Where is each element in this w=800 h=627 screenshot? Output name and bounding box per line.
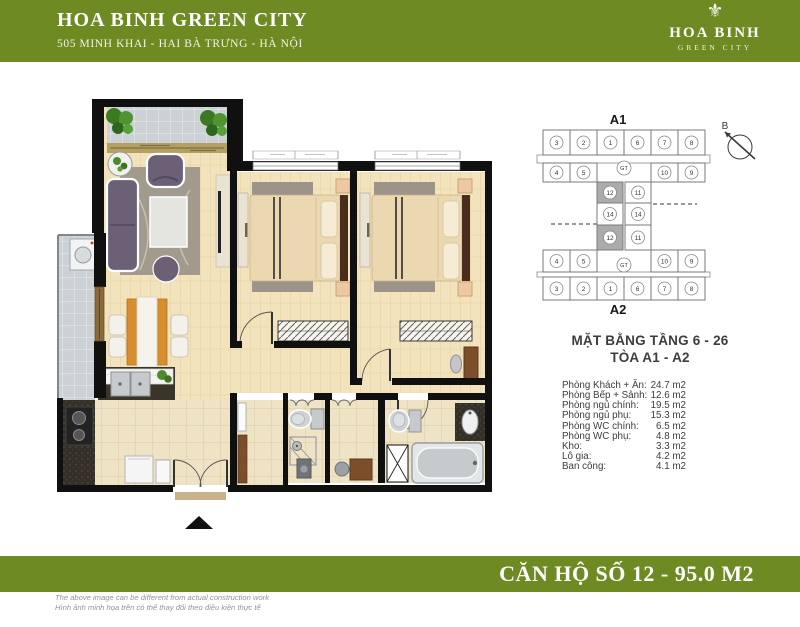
dressing-stool <box>451 355 462 373</box>
tower-label: TÒA A1 - A2 <box>535 349 765 366</box>
unit-number: 5 <box>582 170 586 177</box>
disclaimer: The above image can be different from ac… <box>55 593 375 613</box>
unit-number: 2 <box>582 286 586 293</box>
nightstand <box>336 179 350 193</box>
core-label: GT <box>620 166 628 172</box>
apartment-floor-plan <box>50 85 520 535</box>
unit-number: 5 <box>582 258 586 265</box>
unit-number: 6 <box>636 286 640 293</box>
headboard <box>462 195 470 281</box>
dining-chair <box>171 337 188 357</box>
coffee-table <box>150 197 187 247</box>
unit-number: 10 <box>661 258 669 265</box>
plan-info: MẶT BẰNG TẦNG 6 - 26 TÒA A1 - A2 <box>535 332 765 366</box>
headboard <box>340 195 348 281</box>
unit-number: 2 <box>582 140 586 147</box>
unit-number: 9 <box>690 258 694 265</box>
unit-number: 1 <box>609 140 613 147</box>
dimension-strip <box>375 151 460 159</box>
tower-a2-label: A2 <box>610 302 627 317</box>
logo-tagline: GREEN CITY <box>640 42 790 53</box>
apartment-banner: CĂN HỘ SỐ 12 - 95.0 M2 <box>0 556 800 592</box>
dining-chair <box>109 315 126 335</box>
unit-number: 8 <box>690 286 694 293</box>
header-bar: HOA BINH GREEN CITY 505 MINH KHAI - HAI … <box>0 0 800 62</box>
logia <box>70 239 96 270</box>
room-row: Ban công:4.1 m2 <box>562 462 686 472</box>
unit-number: 6 <box>636 140 640 147</box>
threshold <box>175 492 226 500</box>
toilet-tank <box>409 410 421 432</box>
brand-logo: ⚜ HOA BINH GREEN CITY <box>640 0 790 62</box>
unit-number: 7 <box>663 140 667 147</box>
unit-number: 11 <box>635 190 642 197</box>
entry-mirror <box>238 403 246 431</box>
armchair <box>147 154 184 187</box>
unit-number: 7 <box>663 286 667 293</box>
lotus-emblem-icon: ⚜ <box>640 0 790 24</box>
disclaimer-en: The above image can be different from ac… <box>55 593 375 603</box>
compass-north-label: B <box>722 121 729 132</box>
unit-number: 1 <box>609 286 613 293</box>
unit-number: 4 <box>555 170 559 177</box>
logo-name: HOA BINH <box>640 24 790 42</box>
pillow <box>443 243 459 279</box>
nightstand <box>336 282 350 296</box>
fridge <box>125 456 153 483</box>
dining-chair <box>109 337 126 357</box>
toilet-tank <box>311 409 324 429</box>
nightstand <box>458 282 472 296</box>
unit-number: 3 <box>555 140 559 147</box>
unit-number: 11 <box>635 235 642 242</box>
room-table: Phòng Khách + Ăn:24.7 m2Phòng Bếp + Sảnh… <box>562 381 686 472</box>
disclaimer-vi: Hình ảnh minh họa trên có thể thay đổi t… <box>55 603 375 613</box>
unit-number: 12 <box>606 235 614 242</box>
side-table <box>108 152 132 176</box>
project-address: 505 MINH KHAI - HAI BÀ TRƯNG - HÀ NỘI <box>57 38 303 50</box>
brochure-page: HOA BINH GREEN CITY 505 MINH KHAI - HAI … <box>0 0 800 627</box>
unit-number: 12 <box>606 190 614 197</box>
core-label: GT <box>620 263 628 269</box>
corridor-a2 <box>537 272 710 277</box>
storage-desk <box>350 459 372 480</box>
storage-chair <box>335 462 349 476</box>
ottoman <box>153 256 179 282</box>
tower-key-plan: A1 A2 3216784510912111414121145109321678… <box>535 103 765 321</box>
shoe-cabinet <box>238 435 247 483</box>
dining-chair <box>171 315 188 335</box>
pillow <box>443 201 459 237</box>
dimension-strip <box>253 151 338 159</box>
unit-number: 8 <box>690 140 694 147</box>
unit-number: 14 <box>634 211 642 218</box>
project-title: HOA BINH GREEN CITY <box>57 9 308 32</box>
dressing-table <box>464 347 478 381</box>
nightstand <box>458 179 472 193</box>
tower-a1-label: A1 <box>610 112 627 127</box>
unit-number: 9 <box>690 170 694 177</box>
room-area-value: 4.1 m2 <box>656 462 686 472</box>
unit-number: 10 <box>661 170 669 177</box>
pillow <box>321 201 337 237</box>
cabinet-door <box>156 460 170 483</box>
tv <box>218 191 221 253</box>
unit-number: 14 <box>606 211 614 218</box>
room-label: Ban công: <box>562 462 606 472</box>
unit-number: 4 <box>555 258 559 265</box>
compass-icon: B <box>722 121 755 159</box>
floor-range-label: MẶT BẰNG TẦNG 6 - 26 <box>535 332 765 349</box>
unit-number: 3 <box>555 286 559 293</box>
pillow <box>321 243 337 279</box>
entrance-arrow <box>185 516 213 529</box>
